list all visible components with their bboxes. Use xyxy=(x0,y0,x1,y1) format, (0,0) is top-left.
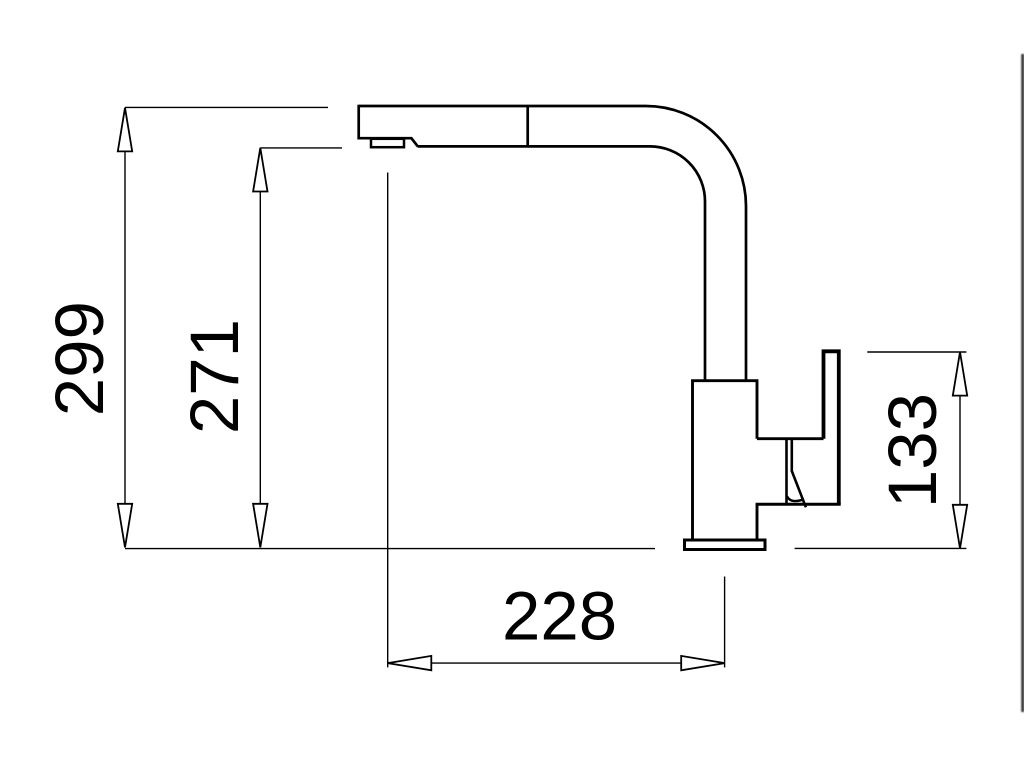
svg-text:133: 133 xyxy=(874,393,951,508)
svg-text:271: 271 xyxy=(176,319,253,434)
svg-text:299: 299 xyxy=(41,301,118,416)
svg-text:228: 228 xyxy=(502,578,617,655)
